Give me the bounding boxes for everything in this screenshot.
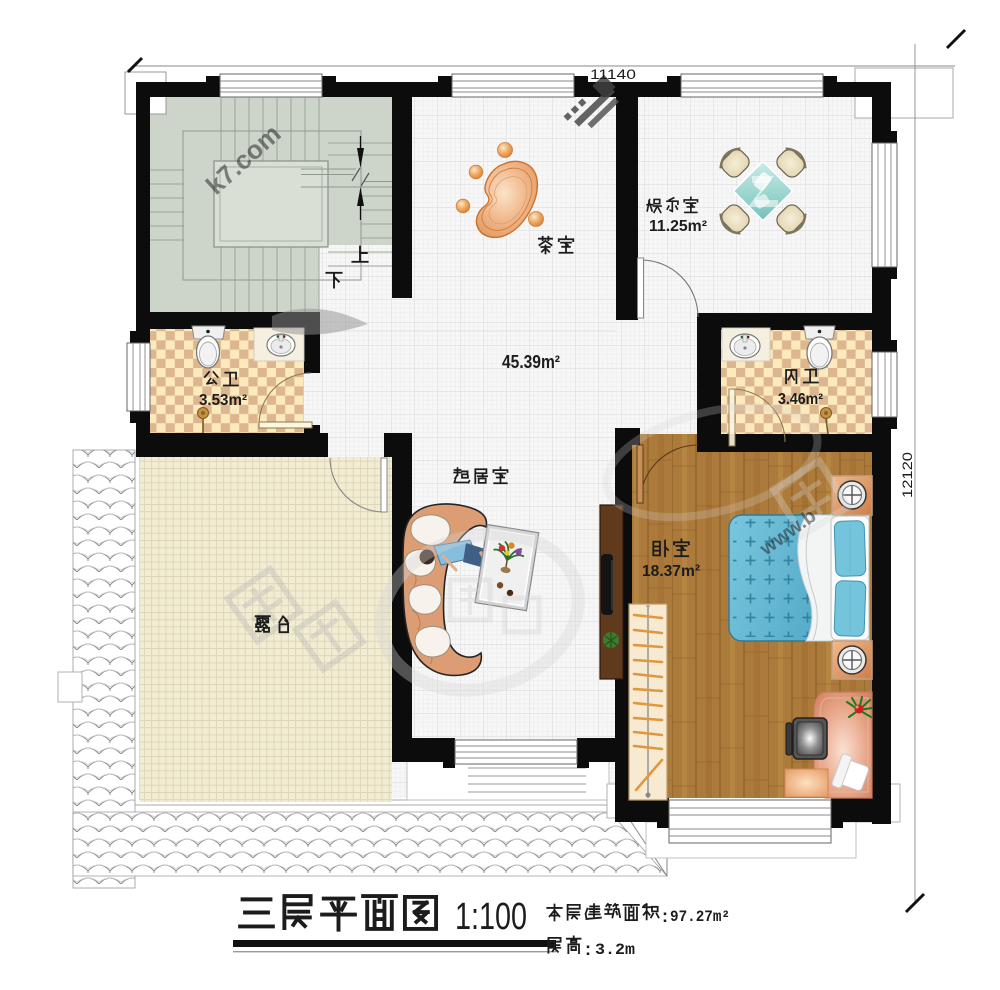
svg-text:45.39m²: 45.39m² <box>502 352 560 372</box>
svg-text::: : <box>662 906 668 926</box>
svg-text:3.53m²: 3.53m² <box>199 392 247 409</box>
svg-text:12120: 12120 <box>900 452 915 498</box>
svg-text:11140: 11140 <box>590 67 636 82</box>
svg-text:97.27m²: 97.27m² <box>670 908 730 926</box>
svg-text:11.25m²: 11.25m² <box>649 218 707 235</box>
svg-text::: : <box>585 939 591 959</box>
svg-text:3.2m: 3.2m <box>595 941 635 959</box>
svg-text:3.46m²: 3.46m² <box>778 391 823 408</box>
svg-text:18.37m²: 18.37m² <box>642 563 700 580</box>
svg-text:1:100: 1:100 <box>455 896 527 938</box>
